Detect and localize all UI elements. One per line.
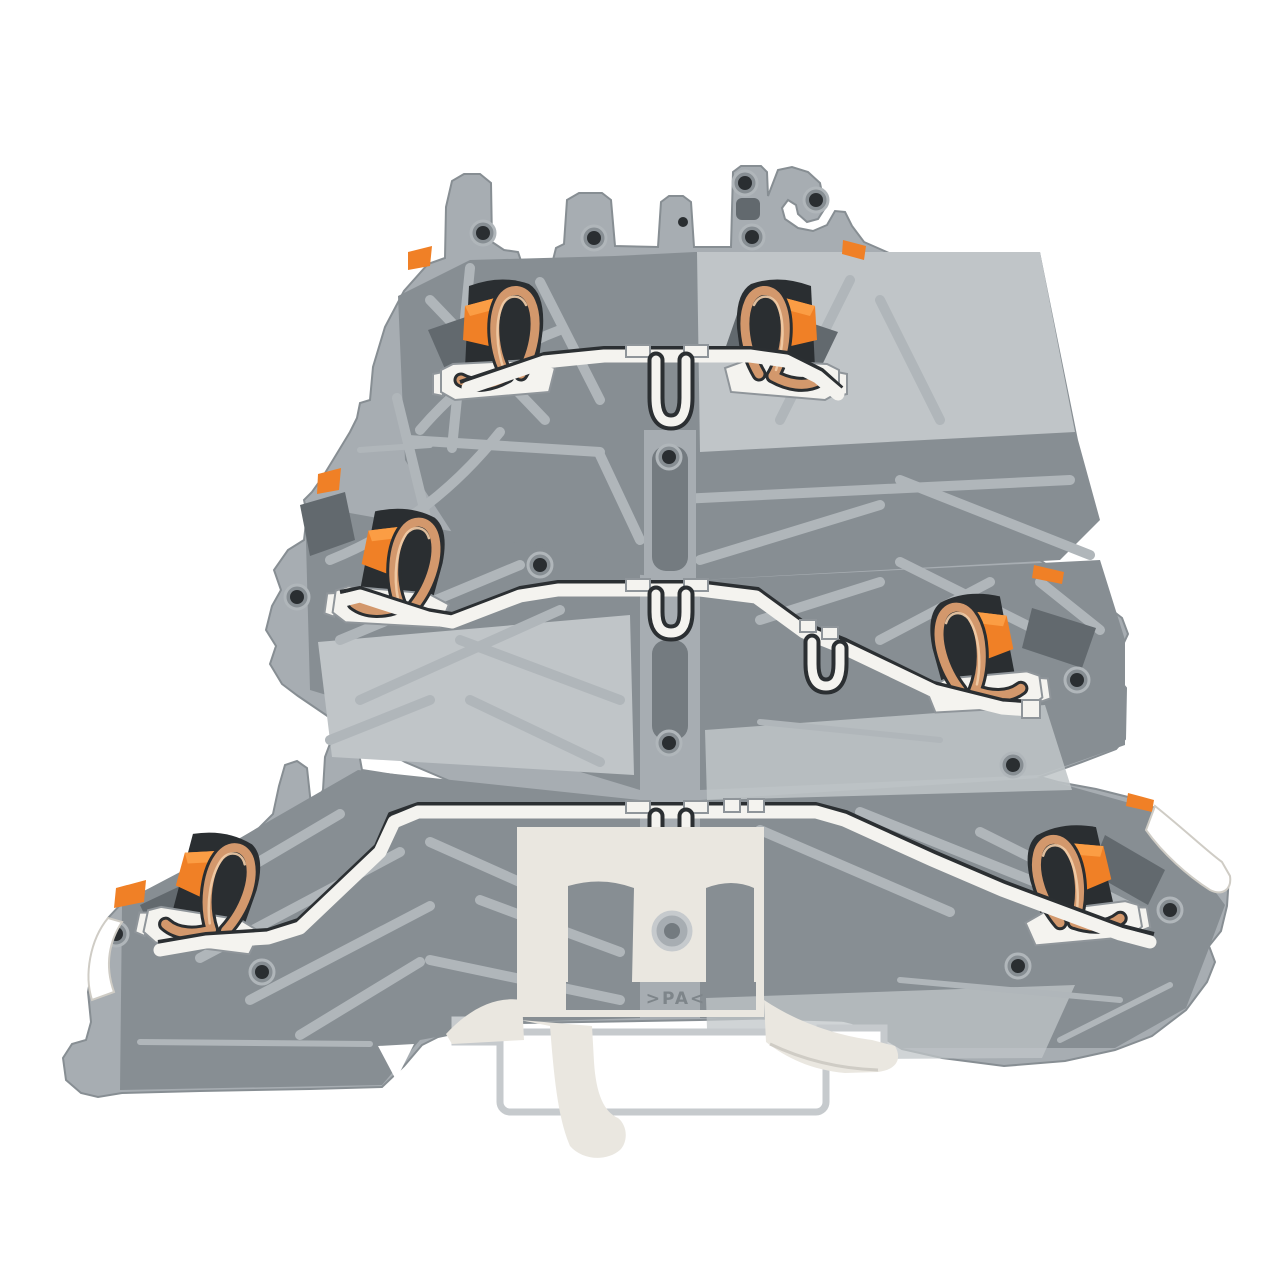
- product-photo: >PA<: [0, 0, 1280, 1280]
- material-marking: >PA<: [646, 989, 707, 1009]
- terminal-block-image: >PA<: [0, 0, 1280, 1280]
- spine-boss-upper: [657, 445, 681, 469]
- spine-boss-lower: [657, 731, 681, 755]
